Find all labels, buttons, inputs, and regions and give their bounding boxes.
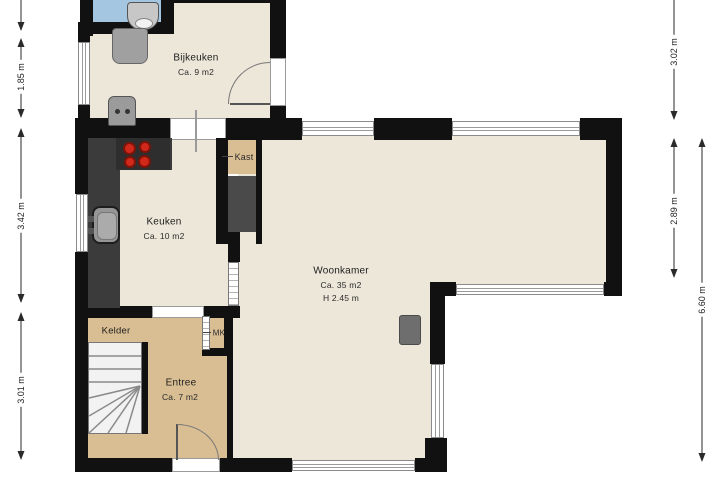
window — [292, 460, 415, 471]
keuken-area-label: Ca. 10 m2 — [143, 231, 184, 241]
keuken-label: Keuken — [146, 217, 181, 228]
window — [78, 42, 90, 105]
entree-label: Entree — [166, 378, 197, 389]
wall — [270, 0, 286, 58]
window — [431, 364, 444, 438]
dim-left-2: 3.42 m — [16, 199, 26, 233]
sink-fixture — [92, 206, 120, 244]
wall — [256, 138, 262, 244]
bijkeuken-keuken-opening — [170, 118, 226, 140]
stove-fixture — [116, 138, 170, 170]
dim-right-1: 3.02 m — [669, 35, 679, 69]
boiler-fixture — [108, 96, 136, 126]
mk-label: MK — [213, 329, 225, 338]
woonkamer-floor-upper — [238, 134, 610, 288]
wall — [604, 282, 622, 296]
keuken-woonkamer-door — [228, 262, 239, 306]
wall — [226, 118, 302, 140]
floor-plan: Bijkeuken Ca. 9 m2 Keuken Ca. 10 m2 Kast… — [0, 0, 720, 480]
wall — [374, 118, 452, 140]
window — [456, 284, 604, 295]
wall — [227, 356, 233, 458]
opening-divider-line — [195, 110, 197, 152]
kelder-label: Kelder — [102, 326, 131, 337]
window — [302, 121, 374, 136]
mk-door — [202, 316, 210, 350]
wall — [75, 252, 88, 310]
wall — [216, 138, 228, 244]
toilet-fixture — [127, 2, 159, 30]
wall — [78, 22, 90, 44]
wall — [228, 232, 240, 262]
bijkeuken-label: Bijkeuken — [173, 53, 218, 64]
woonkamer-label: Woonkamer — [313, 266, 369, 277]
wall — [430, 282, 445, 364]
keuken-entree-opening — [152, 306, 204, 318]
kast-cabinet — [228, 176, 256, 232]
stairs — [88, 342, 142, 434]
wall — [75, 458, 172, 472]
wall — [415, 458, 447, 472]
wall — [75, 306, 88, 472]
woonkamer-floor-lower — [233, 286, 435, 460]
mk-leader-line — [203, 332, 211, 333]
woonkamer-object — [399, 315, 421, 345]
entree-area-label: Ca. 7 m2 — [162, 392, 198, 402]
window — [452, 121, 580, 136]
window — [76, 194, 88, 252]
front-door-opening — [172, 458, 220, 472]
wall — [161, 0, 174, 26]
dim-right-2: 2.89 m — [669, 194, 679, 228]
woonkamer-area-label: Ca. 35 m2 — [320, 280, 361, 290]
bijkeuken-area-label: Ca. 9 m2 — [178, 67, 214, 77]
bijkeuken-door-opening — [270, 58, 286, 106]
wall — [75, 140, 88, 194]
washing-machine-fixture — [112, 28, 148, 64]
kast-label: Kast — [235, 152, 254, 162]
kast-leader-line — [222, 156, 233, 157]
wall — [142, 342, 148, 434]
dim-left-3: 3.01 m — [16, 373, 26, 407]
wall — [606, 118, 622, 296]
dim-right-3: 6.60 m — [697, 283, 707, 317]
wall — [220, 458, 292, 472]
woonkamer-height-label: H 2.45 m — [323, 293, 359, 303]
dim-left-1: 1.85 m — [16, 60, 26, 94]
